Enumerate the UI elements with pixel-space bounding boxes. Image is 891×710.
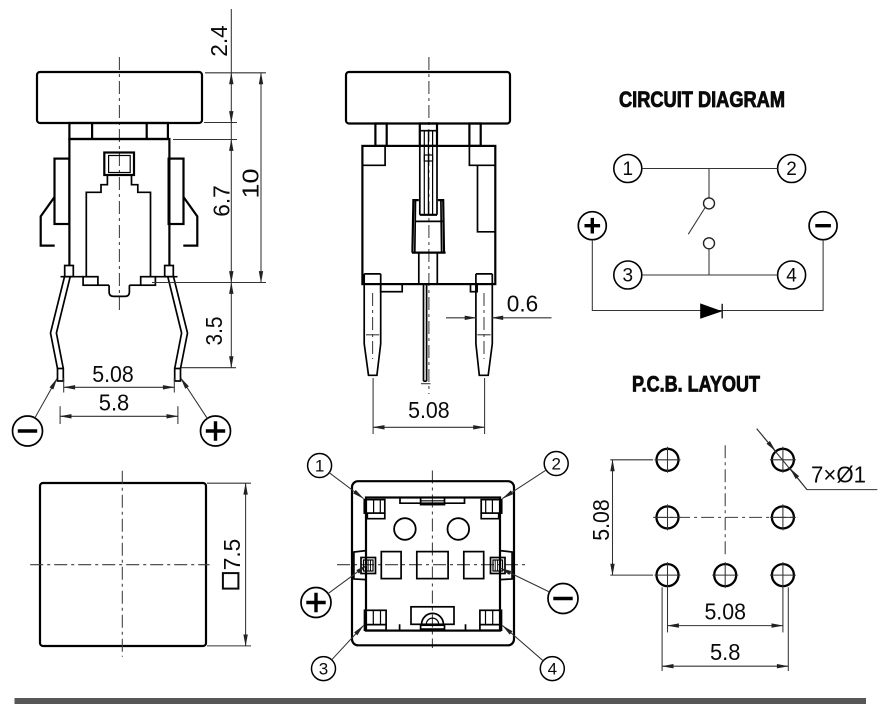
- svg-text:4: 4: [548, 660, 557, 679]
- svg-text:2: 2: [551, 455, 560, 474]
- svg-text:7.5: 7.5: [219, 539, 245, 571]
- svg-text:2.4: 2.4: [206, 25, 232, 57]
- svg-text:CIRCUIT DIAGRAM: CIRCUIT DIAGRAM: [619, 87, 785, 112]
- svg-text:1: 1: [623, 159, 634, 180]
- svg-text:5.08: 5.08: [408, 397, 450, 423]
- svg-text:6.7: 6.7: [209, 185, 235, 217]
- svg-text:3: 3: [319, 660, 328, 679]
- svg-text:10: 10: [238, 169, 264, 199]
- svg-text:5.8: 5.8: [99, 390, 130, 416]
- svg-text:5.08: 5.08: [588, 499, 614, 541]
- svg-text:3: 3: [623, 266, 634, 287]
- svg-text:7×Ø1: 7×Ø1: [811, 462, 866, 488]
- svg-text:0.6: 0.6: [507, 290, 539, 316]
- svg-text:5.8: 5.8: [710, 639, 741, 665]
- svg-text:4: 4: [786, 266, 797, 287]
- svg-text:2: 2: [786, 159, 797, 180]
- svg-text:5.08: 5.08: [92, 361, 134, 387]
- svg-text:1: 1: [315, 457, 324, 476]
- svg-text:P.C.B. LAYOUT: P.C.B. LAYOUT: [632, 372, 760, 397]
- svg-text:5.08: 5.08: [704, 599, 746, 625]
- svg-text:3.5: 3.5: [201, 317, 227, 346]
